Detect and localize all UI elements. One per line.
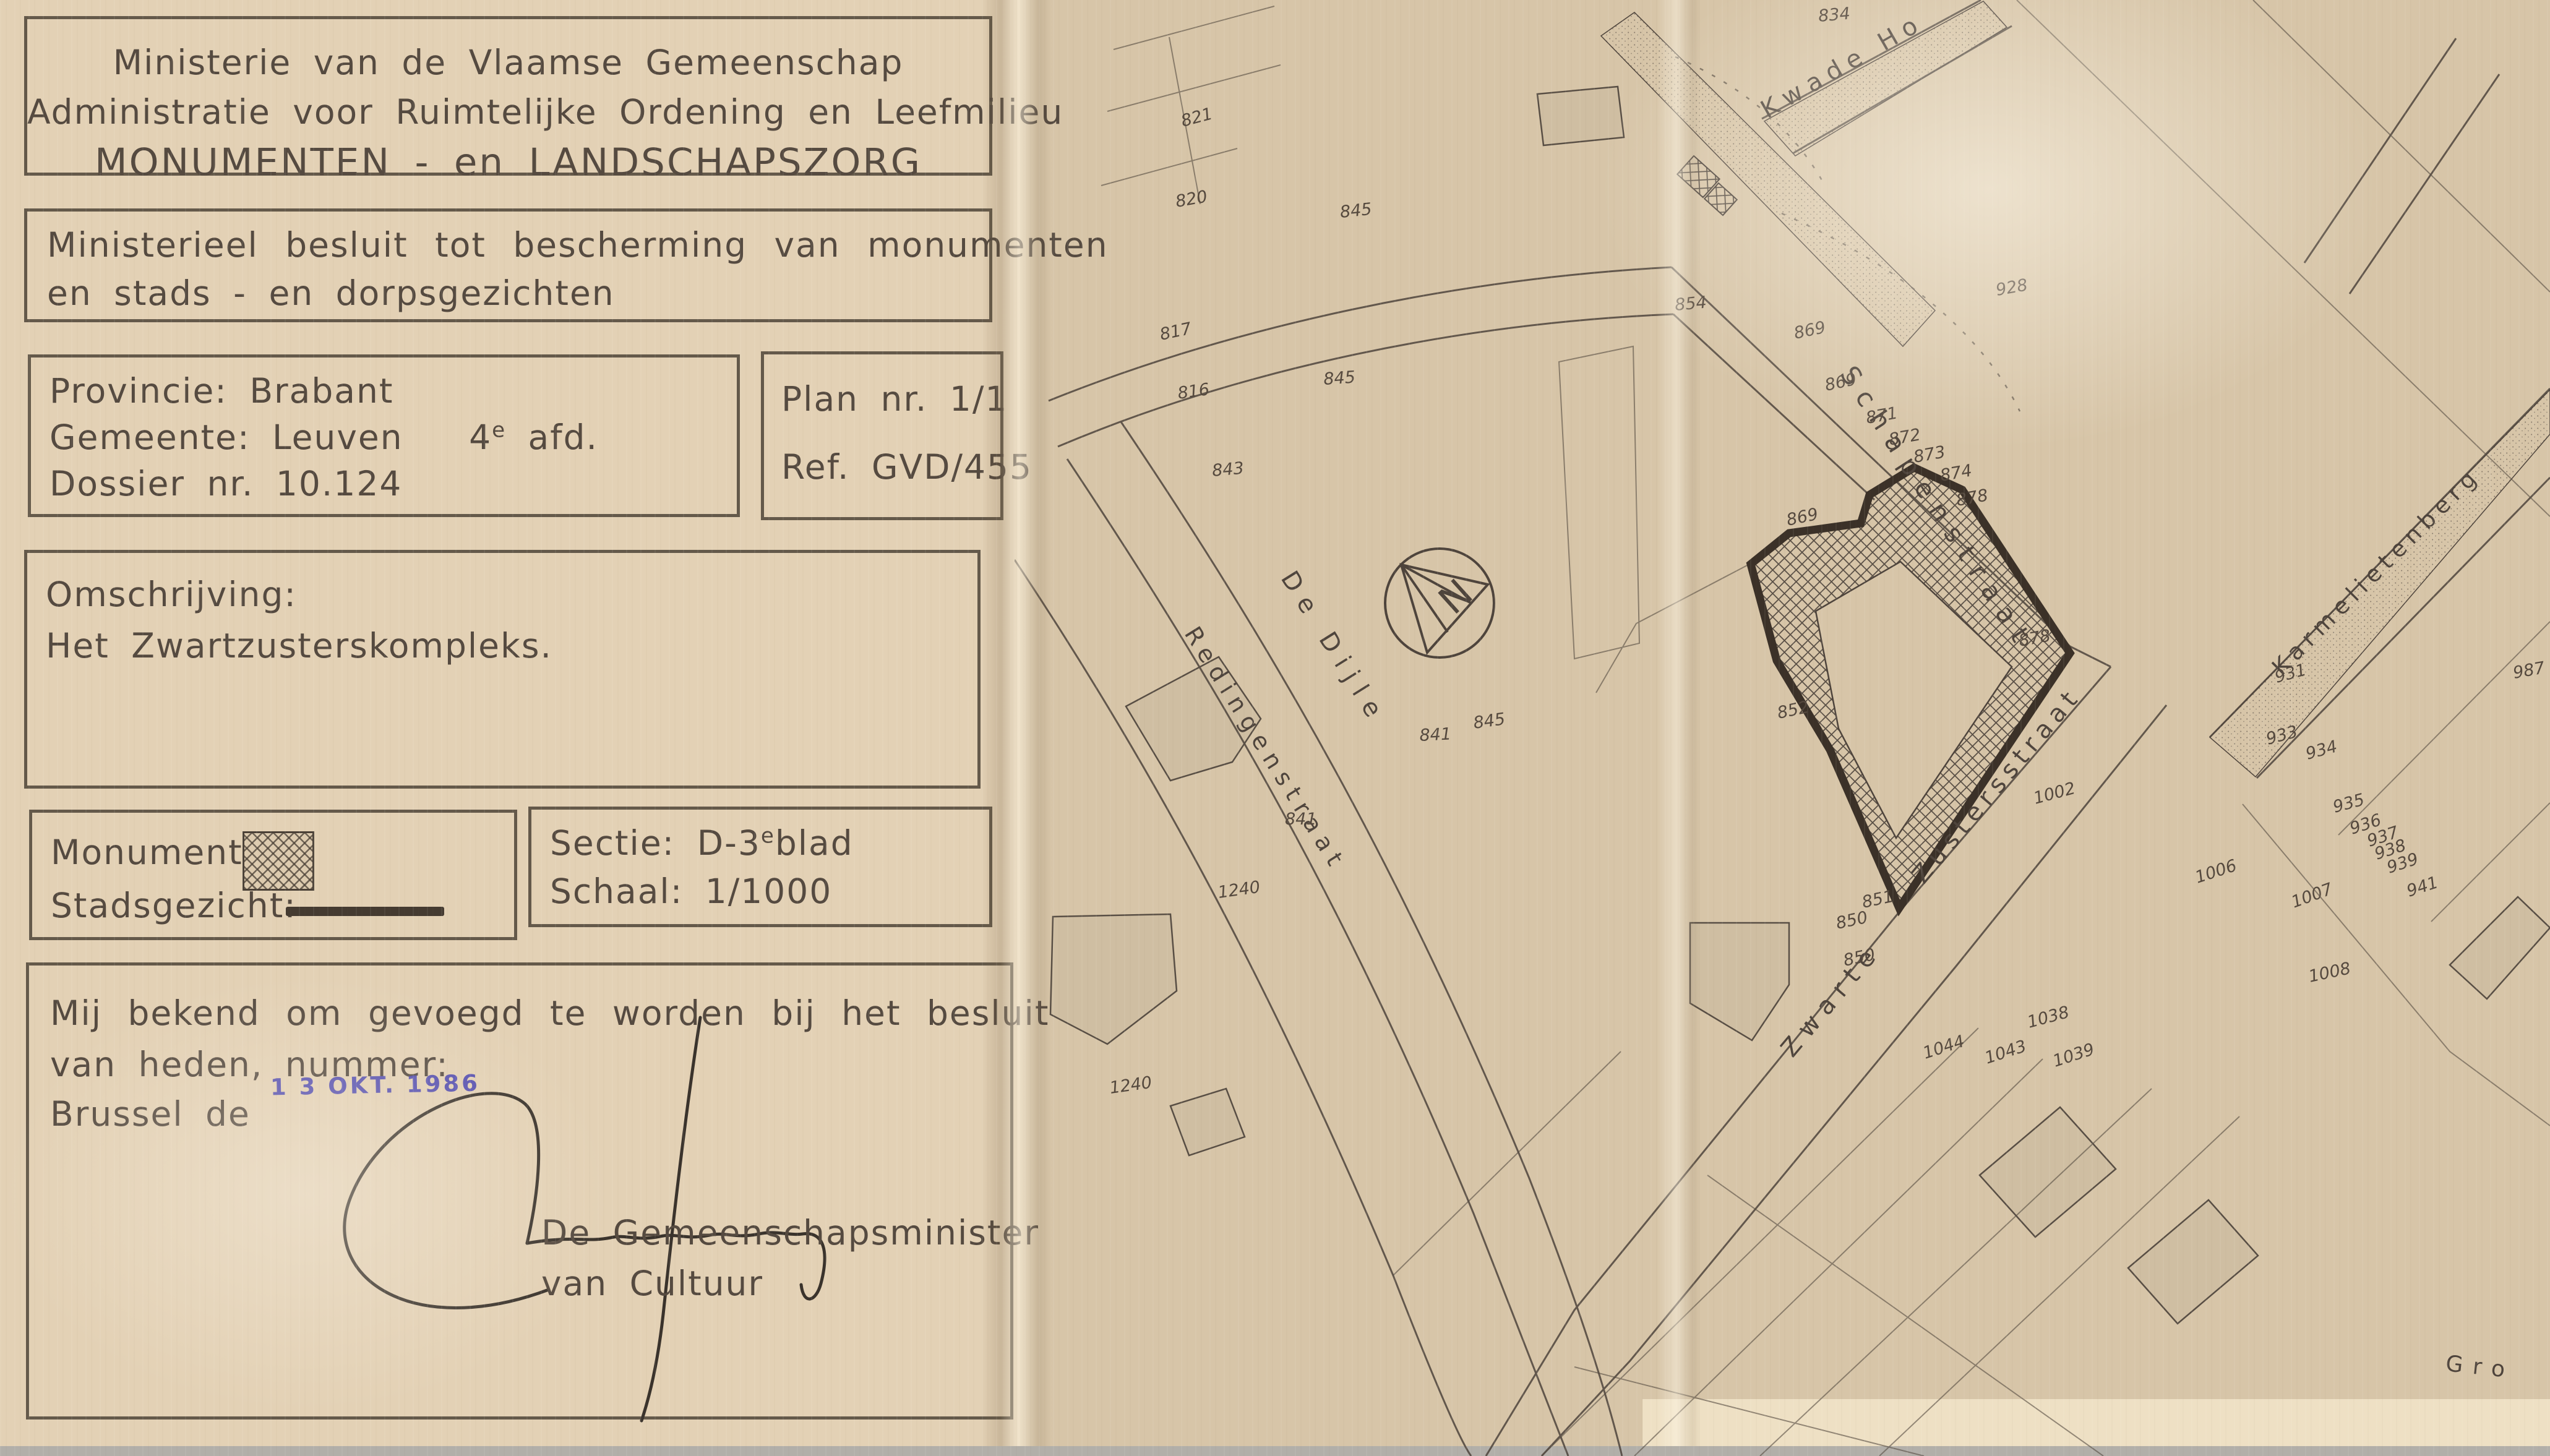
dossier-label: Dossier nr.: [49, 464, 254, 503]
parcel-number: 1043: [1983, 1037, 2029, 1068]
minister-signature: [264, 993, 895, 1426]
plan-label: Plan nr.: [781, 379, 927, 419]
parcel-number: 928: [1994, 275, 2029, 299]
parcel-number: 850: [1834, 908, 1870, 933]
decree-line2: en stads - en dorpsgezichten: [47, 273, 615, 313]
parcel-number: 869: [1792, 318, 1827, 343]
monument-label: Monument:: [51, 833, 255, 872]
sectie-label: Sectie:: [550, 823, 675, 863]
ref-label: Ref.: [781, 447, 849, 487]
monument-hatch-swatch: [243, 831, 314, 891]
plan-row: Plan nr. 1/1: [781, 379, 1008, 419]
parcel-number: 845: [1323, 367, 1356, 389]
ref-number: GVD/455: [872, 447, 1032, 487]
parcel-number: 1240: [1217, 878, 1261, 902]
attestation-line3: Brussel de: [50, 1094, 251, 1134]
schaal-value: 1/1000: [705, 871, 833, 911]
parcel-number: 873: [1912, 442, 1947, 466]
parcel-number: 852: [1775, 698, 1811, 723]
description-label: Omschrijving:: [46, 575, 297, 614]
parcel-number: 1044: [1921, 1032, 1967, 1063]
plan-ref-box: Plan nr. 1/1 Ref. GVD/455: [761, 351, 1003, 520]
parcel-number: 817: [1158, 319, 1193, 345]
signatory-title-line1: De Gemeenschapsminister: [541, 1213, 1039, 1253]
department-line: MONUMENTEN - en LANDSCHAPSZORG: [27, 137, 989, 189]
plan-number: 1/1: [950, 379, 1008, 419]
afdeling-rest: afd.: [528, 418, 598, 457]
legend-box: Monument: Stadsgezicht:: [29, 810, 517, 940]
description-value: Het Zwartzusterskompleks.: [46, 626, 552, 666]
description-box: Omschrijving: Het Zwartzusterskompleks.: [24, 550, 981, 789]
north-arrow: N: [1385, 549, 1494, 657]
dossier-number: 10.124: [276, 464, 402, 503]
parcel-number: 1240: [1109, 1073, 1153, 1098]
parcel-number: 1039: [2051, 1040, 2097, 1071]
gemeente-label: Gemeente:: [49, 418, 251, 457]
parcel-number: 1008: [2307, 959, 2353, 987]
parcel-number: 841: [1419, 724, 1452, 745]
schaal-label: Schaal:: [550, 871, 683, 911]
stippled-parcel-bands: [1601, 1, 2550, 777]
parcel-number: 935: [2331, 790, 2367, 816]
sectie-rest: blad: [775, 823, 854, 863]
gemeente-row: Gemeente: Leuven 4e afd.: [49, 418, 598, 457]
ref-row: Ref. GVD/455: [781, 447, 1032, 487]
header-box: Ministerie van de Vlaamse Gemeenschap Ad…: [24, 16, 992, 176]
stadsgezicht-label: Stadsgezicht:: [51, 886, 297, 925]
parcel-number: 874: [1939, 461, 1973, 485]
sectie-row: Sectie: D-3eblad: [550, 823, 854, 863]
parcel-number: 843: [1211, 459, 1245, 481]
stadsgezicht-line-swatch: [286, 907, 444, 916]
decree-title-box: Ministerieel besluit tot bescherming van…: [24, 208, 992, 322]
dossier-row: Dossier nr. 10.124: [49, 464, 402, 503]
parcel-number: 834: [1818, 4, 1851, 26]
parcel-number: 987: [2512, 658, 2546, 682]
street-label-gro: Gro: [2444, 1351, 2516, 1383]
parcel-number: 816: [1177, 380, 1211, 403]
sectie-value: D-3: [697, 823, 761, 863]
section-scale-box: Sectie: D-3eblad Schaal: 1/1000: [528, 807, 992, 927]
ministry-line: Ministerie van de Vlaamse Gemeenschap: [27, 38, 989, 87]
province-value: Brabant: [249, 371, 393, 411]
administration-line: Administratie voor Ruimtelijke Ordening …: [27, 87, 989, 137]
street-label-de-dijle: De Dijle: [1275, 566, 1393, 730]
afdeling-sup: e: [492, 418, 506, 443]
dossier-box: Provincie: Brabant Gemeente: Leuven 4e a…: [28, 354, 740, 517]
parcel-number: 821: [1179, 104, 1215, 131]
attestation-box: Mij bekend om gevoegd te worden bij het …: [26, 962, 1013, 1420]
parcel-number: 820: [1174, 187, 1209, 211]
parcel-number: 841: [1285, 810, 1317, 829]
gemeente-value: Leuven: [272, 418, 403, 457]
decree-line1: Ministerieel besluit tot bescherming van…: [47, 225, 1109, 265]
province-label: Provincie:: [49, 371, 228, 411]
street-label-karmelietenberg: Karmelietenberg: [2267, 461, 2486, 680]
parcel-number: 941: [2405, 873, 2441, 901]
parcel-number: 854: [1674, 293, 1707, 315]
afdeling-number: 4: [469, 418, 492, 457]
signatory-title-line2: van Cultuur: [541, 1264, 763, 1303]
sectie-sup: e: [761, 824, 775, 849]
parcel-number: 934: [2304, 737, 2340, 763]
parcel-number: 1002: [2032, 779, 2077, 808]
schaal-row: Schaal: 1/1000: [550, 871, 832, 911]
parcel-number: 1006: [2193, 856, 2239, 888]
parcel-number: 845: [1472, 709, 1506, 733]
north-label: N: [1430, 570, 1481, 623]
province-row: Provincie: Brabant: [49, 371, 393, 411]
scanned-decree-sheet: Ministerie van de Vlaamse Gemeenschap Ad…: [0, 0, 2550, 1456]
parcel-number: 845: [1339, 200, 1373, 222]
parcel-number: 1038: [2025, 1003, 2071, 1032]
cadastral-map: N Kwade Ho Schapenstraat Zwarte Zusterss…: [1015, 0, 2550, 1456]
